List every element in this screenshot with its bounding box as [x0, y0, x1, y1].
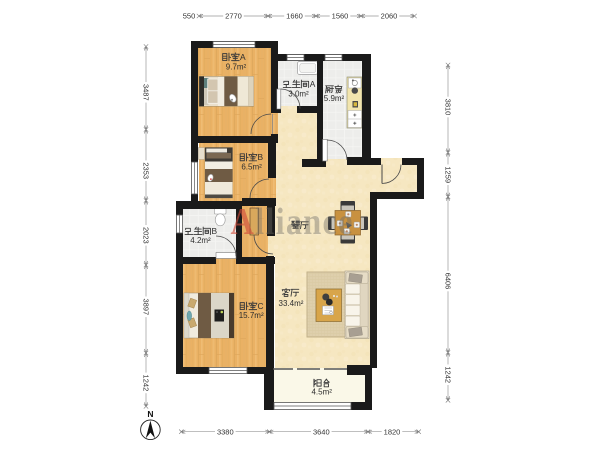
svg-text:1242: 1242 — [444, 366, 453, 383]
svg-text:3.0m²: 3.0m² — [288, 89, 309, 98]
svg-text:1560: 1560 — [332, 12, 349, 21]
svg-text:9.7m²: 9.7m² — [226, 62, 247, 71]
svg-text:4.5m²: 4.5m² — [311, 387, 332, 396]
svg-text:3487: 3487 — [142, 84, 151, 101]
svg-text:3810: 3810 — [444, 99, 453, 116]
svg-text:3380: 3380 — [217, 427, 234, 436]
svg-text:15.7m²: 15.7m² — [239, 311, 264, 320]
svg-text:2770: 2770 — [225, 12, 242, 21]
svg-text:1259: 1259 — [444, 166, 453, 183]
svg-text:B: B — [258, 152, 264, 162]
svg-text:5.9m²: 5.9m² — [324, 94, 345, 103]
svg-text:A: A — [310, 79, 316, 89]
svg-text:N: N — [147, 409, 153, 419]
svg-text:33.4m²: 33.4m² — [279, 299, 304, 308]
svg-text:4.2m²: 4.2m² — [190, 236, 211, 245]
svg-text:C: C — [258, 301, 264, 311]
svg-text:3640: 3640 — [313, 427, 330, 436]
svg-text:1242: 1242 — [142, 375, 151, 392]
svg-text:6.5m²: 6.5m² — [241, 162, 262, 171]
svg-text:Alliance: Alliance — [231, 200, 354, 242]
svg-text:2060: 2060 — [381, 12, 398, 21]
svg-text:1660: 1660 — [286, 12, 303, 21]
svg-text:3897: 3897 — [142, 298, 151, 315]
svg-text:6406: 6406 — [444, 273, 453, 290]
svg-text:2023: 2023 — [142, 227, 151, 244]
svg-text:B: B — [212, 226, 218, 236]
svg-text:1820: 1820 — [384, 427, 401, 436]
svg-text:550: 550 — [183, 12, 196, 21]
svg-text:2353: 2353 — [142, 162, 151, 179]
svg-text:A: A — [240, 52, 246, 62]
